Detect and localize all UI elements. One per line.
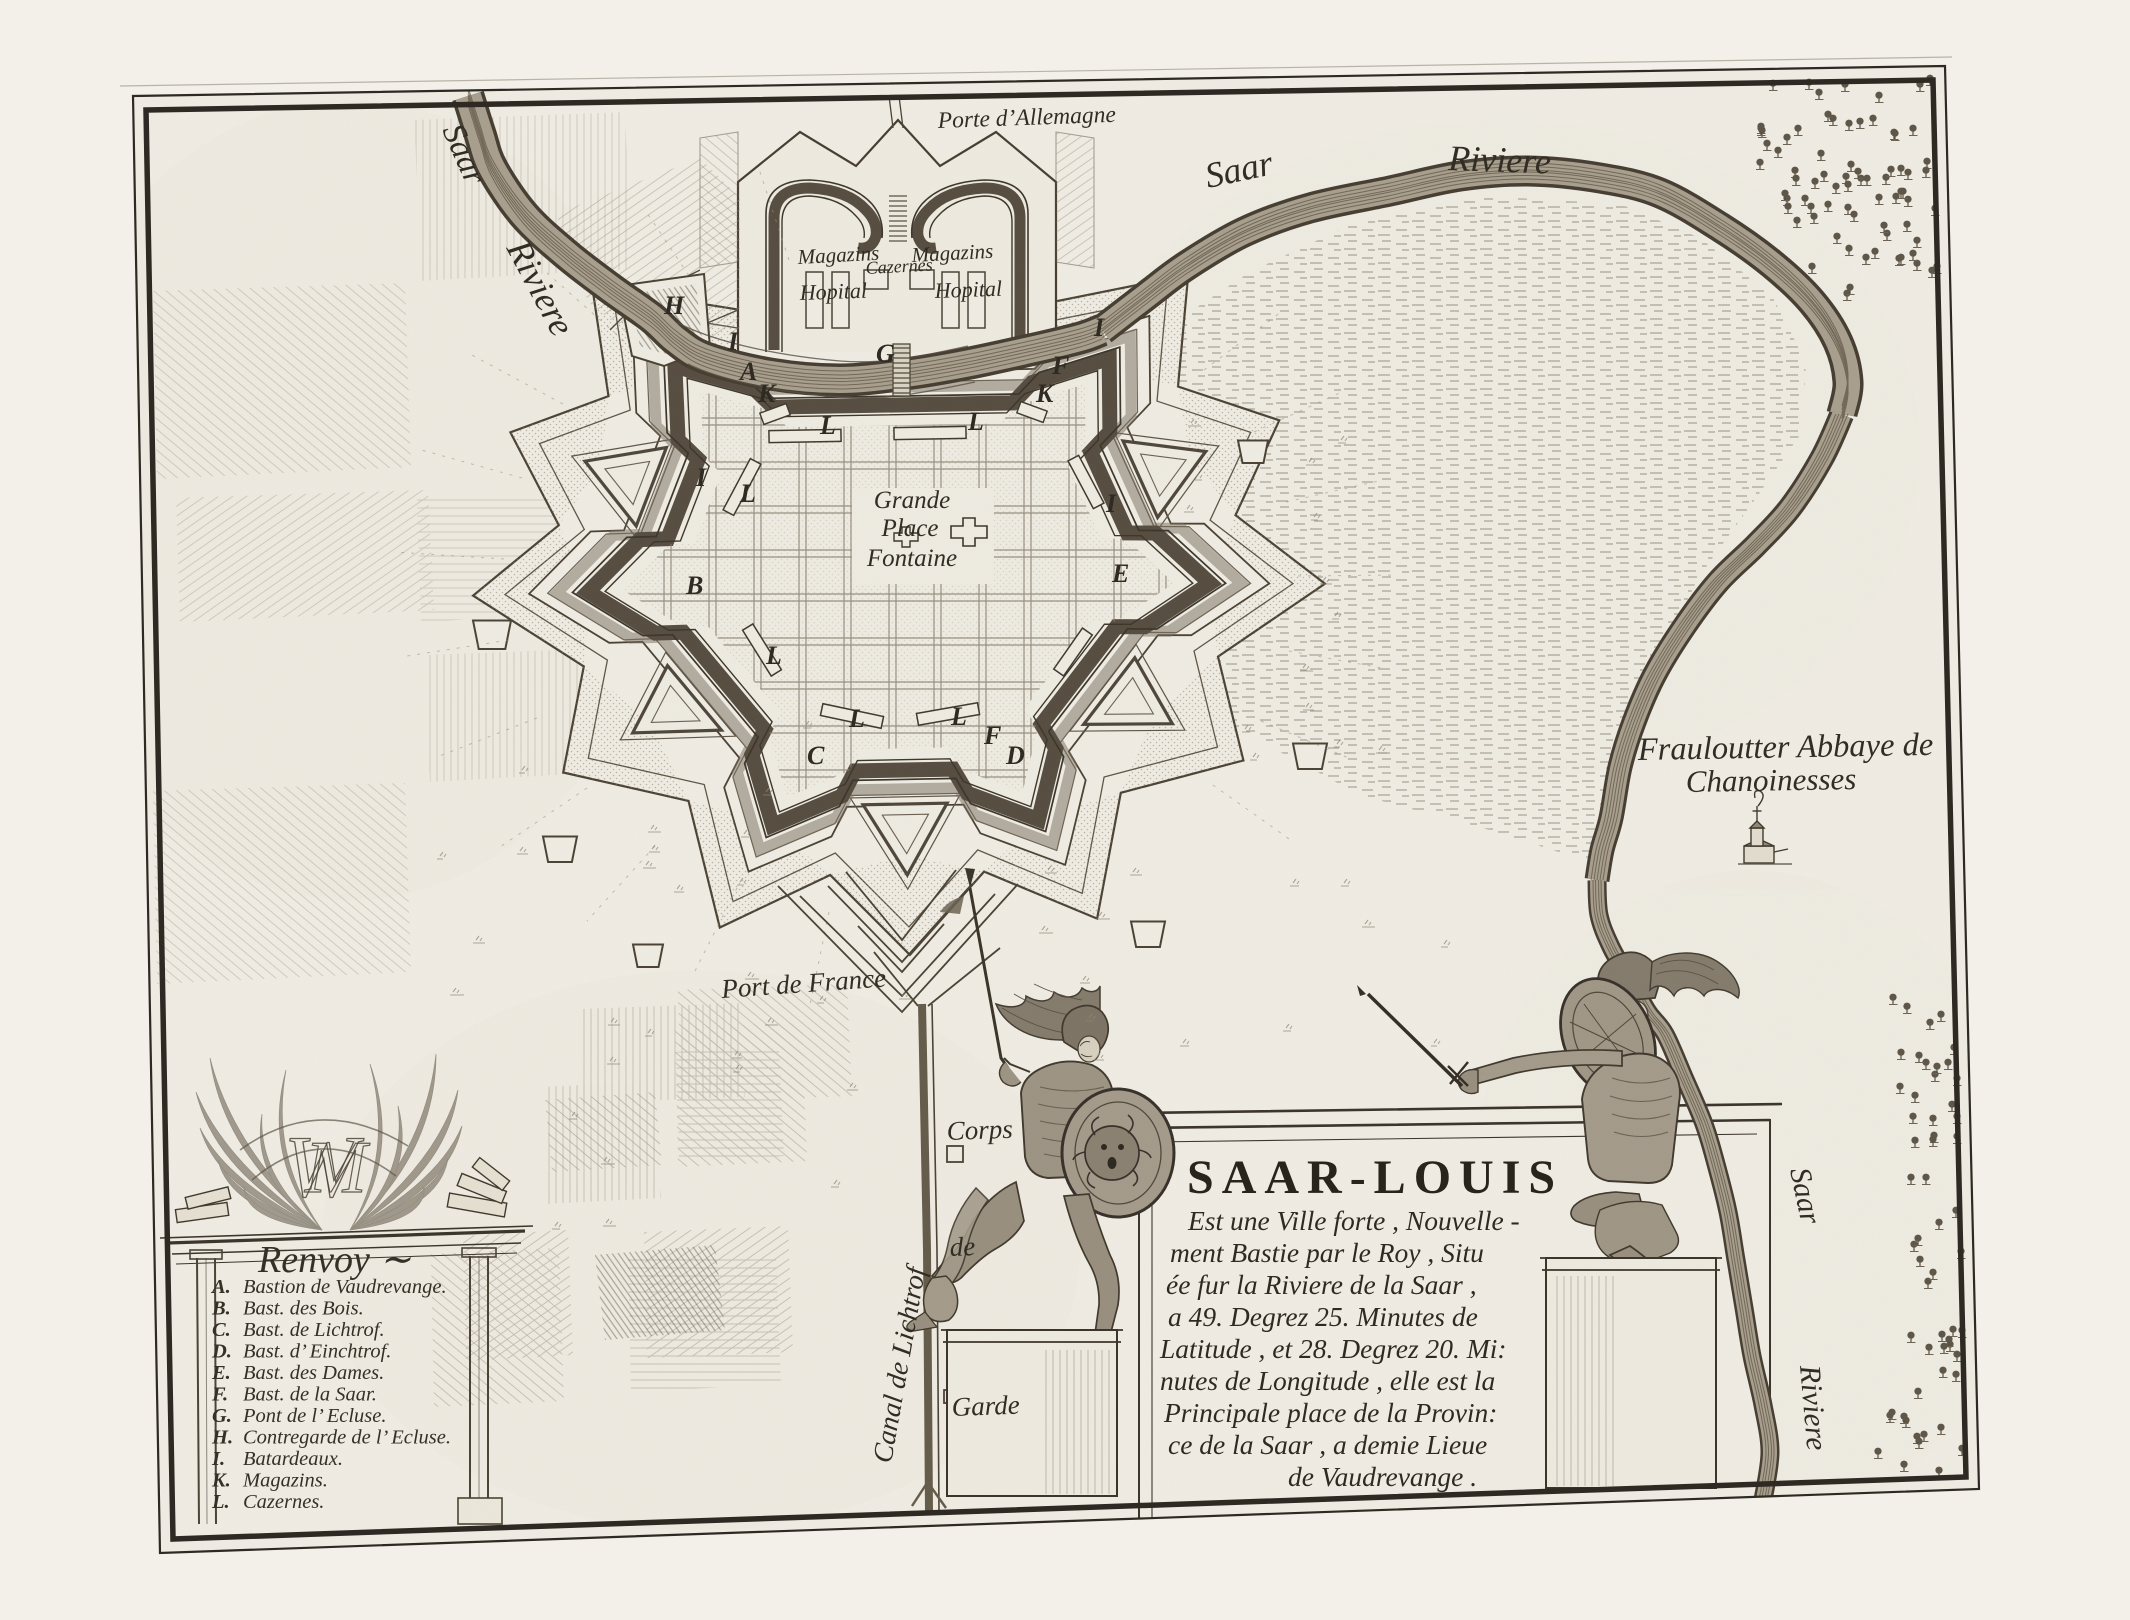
svg-text:Batardeaux.: Batardeaux. — [243, 1448, 343, 1470]
svg-text:I: I — [727, 327, 739, 356]
svg-text:E: E — [1111, 559, 1129, 588]
svg-text:Cazernes.: Cazernes. — [243, 1491, 324, 1513]
svg-text:Bast. des Dames.: Bast. des Dames. — [243, 1362, 384, 1384]
svg-text:L: L — [967, 407, 984, 436]
svg-text:B.: B. — [211, 1298, 231, 1320]
svg-text:ment Bastie par le Roy , Situ: ment Bastie par le Roy , Situ — [1170, 1237, 1484, 1268]
svg-text:H: H — [663, 291, 685, 320]
svg-text:Latitude , et 28. Degrez 20. M: Latitude , et 28. Degrez 20. Mi: — [1159, 1333, 1507, 1364]
svg-text:Principale place de la Provin:: Principale place de la Provin: — [1163, 1397, 1497, 1428]
svg-text:Bast. des Bois.: Bast. des Bois. — [243, 1298, 364, 1320]
svg-text:Bastion de Vaudrevange.: Bastion de Vaudrevange. — [243, 1276, 447, 1298]
svg-text:SAAR-LOUIS: SAAR-LOUIS — [1187, 1151, 1563, 1204]
svg-text:Renvoy ∼: Renvoy ∼ — [257, 1239, 411, 1281]
svg-text:F: F — [983, 721, 1001, 750]
svg-text:Fontaine: Fontaine — [866, 545, 957, 572]
svg-text:Place: Place — [881, 515, 939, 542]
svg-text:nutes de Longitude , elle est: nutes de Longitude , elle est la — [1160, 1365, 1495, 1396]
svg-text:M: M — [304, 1127, 371, 1209]
svg-text:de: de — [949, 1231, 976, 1262]
svg-text:L: L — [848, 704, 865, 733]
svg-text:C: C — [807, 741, 825, 770]
svg-text:I.: I. — [211, 1448, 225, 1470]
svg-text:L: L — [819, 411, 836, 440]
svg-text:I: I — [695, 463, 707, 492]
svg-text:Hopital: Hopital — [933, 276, 1002, 303]
svg-text:a 49. Degrez 25. Minutes de: a 49. Degrez 25. Minutes de — [1168, 1301, 1478, 1332]
svg-text:D: D — [1005, 741, 1025, 770]
svg-text:F.: F. — [211, 1384, 228, 1406]
svg-text:I: I — [1093, 313, 1105, 342]
svg-text:Grande: Grande — [874, 487, 950, 514]
svg-text:Est une Ville forte , Nouvelle: Est une Ville forte , Nouvelle - — [1187, 1205, 1520, 1236]
svg-text:F: F — [1051, 351, 1069, 380]
svg-text:C.: C. — [212, 1319, 231, 1341]
svg-text:ée fur la Riviere de la Saar ,: ée fur la Riviere de la Saar , — [1166, 1269, 1477, 1300]
svg-text:I: I — [1105, 489, 1117, 518]
svg-text:Magazins.: Magazins. — [242, 1470, 328, 1492]
svg-text:D.: D. — [211, 1341, 232, 1363]
svg-text:G.: G. — [212, 1405, 232, 1427]
svg-text:A: A — [738, 357, 757, 386]
svg-text:L: L — [765, 641, 782, 670]
svg-text:E.: E. — [211, 1362, 231, 1384]
svg-text:K.: K. — [211, 1470, 231, 1492]
svg-text:Bast. de la Saar.: Bast. de la Saar. — [243, 1384, 377, 1406]
svg-text:Garde: Garde — [951, 1390, 1020, 1422]
svg-text:L.: L. — [211, 1491, 230, 1513]
svg-text:Chanoinesses: Chanoinesses — [1686, 761, 1857, 799]
svg-text:H.: H. — [211, 1427, 233, 1449]
svg-text:G: G — [876, 339, 895, 368]
svg-text:Bast. d’ Einchtrof.: Bast. d’ Einchtrof. — [243, 1341, 391, 1363]
svg-text:Pont de l’ Ecluse.: Pont de l’ Ecluse. — [242, 1405, 386, 1427]
svg-text:Bast. de Lichtrof.: Bast. de Lichtrof. — [243, 1319, 385, 1341]
svg-text:Contregarde de l’ Ecluse.: Contregarde de l’ Ecluse. — [243, 1427, 451, 1449]
svg-text:ce de la Saar , a demie Lieue: ce de la Saar , a demie Lieue — [1168, 1429, 1487, 1460]
svg-text:Corps: Corps — [946, 1114, 1013, 1146]
svg-text:de Vaudrevange .: de Vaudrevange . — [1288, 1461, 1477, 1492]
svg-text:B: B — [685, 571, 703, 600]
svg-text:L: L — [950, 702, 967, 731]
svg-text:K: K — [1035, 379, 1055, 408]
svg-text:A.: A. — [210, 1276, 231, 1298]
svg-text:K: K — [757, 379, 777, 408]
svg-text:L: L — [739, 479, 756, 508]
svg-text:Magazins: Magazins — [910, 239, 994, 267]
svg-text:Riviere: Riviere — [1447, 138, 1552, 182]
svg-text:Hopital: Hopital — [798, 278, 867, 305]
